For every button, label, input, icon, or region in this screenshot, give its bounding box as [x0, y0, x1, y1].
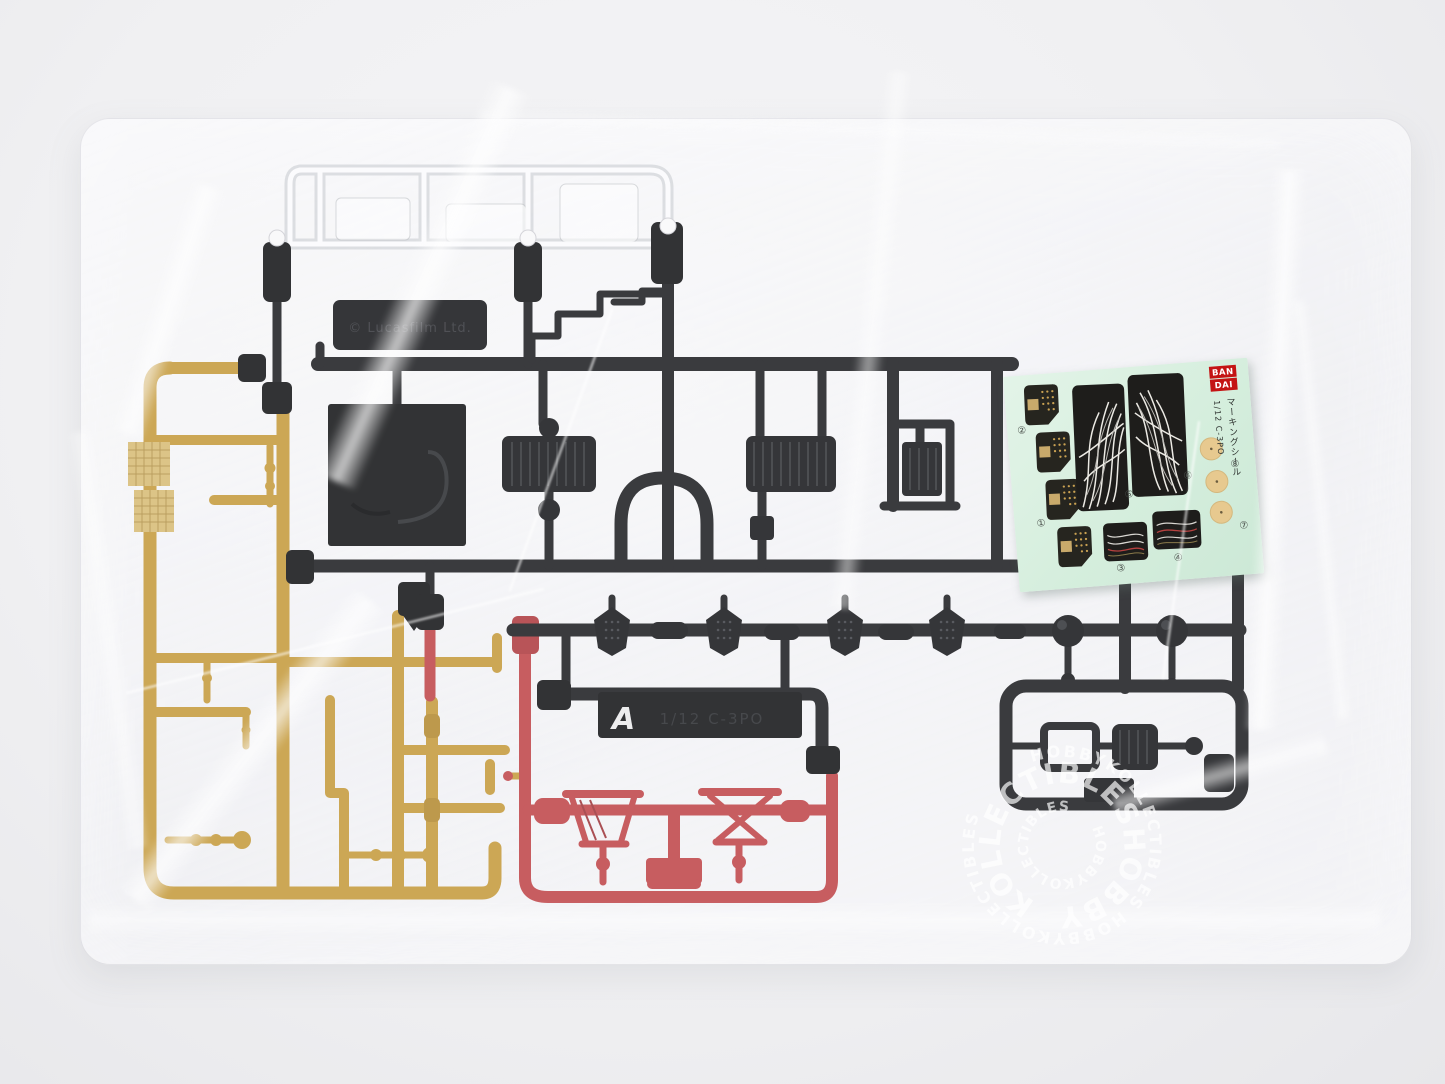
- svg-text:HOBBYKOLLECTIBLES HOBBYKOLLECT: HOBBYKOLLECTIBLES HOBBYKOLLECTIBLES: [930, 713, 1194, 978]
- svg-text:KOLLECTIBLESHOBBY: KOLLECTIBLESHOBBY: [944, 727, 1182, 965]
- watermark-graphic: HOBBYKOLLECTIBLES HOBBYKOLLECTIBLES KOLL…: [0, 0, 1445, 1084]
- watermark-ring-outer: HOBBYKOLLECTIBLES HOBBYKOLLECTIBLES: [930, 713, 1194, 978]
- product-photo: © Lucasfilm Ltd.: [0, 0, 1445, 1084]
- watermark-ring-middle: KOLLECTIBLESHOBBY: [944, 727, 1182, 965]
